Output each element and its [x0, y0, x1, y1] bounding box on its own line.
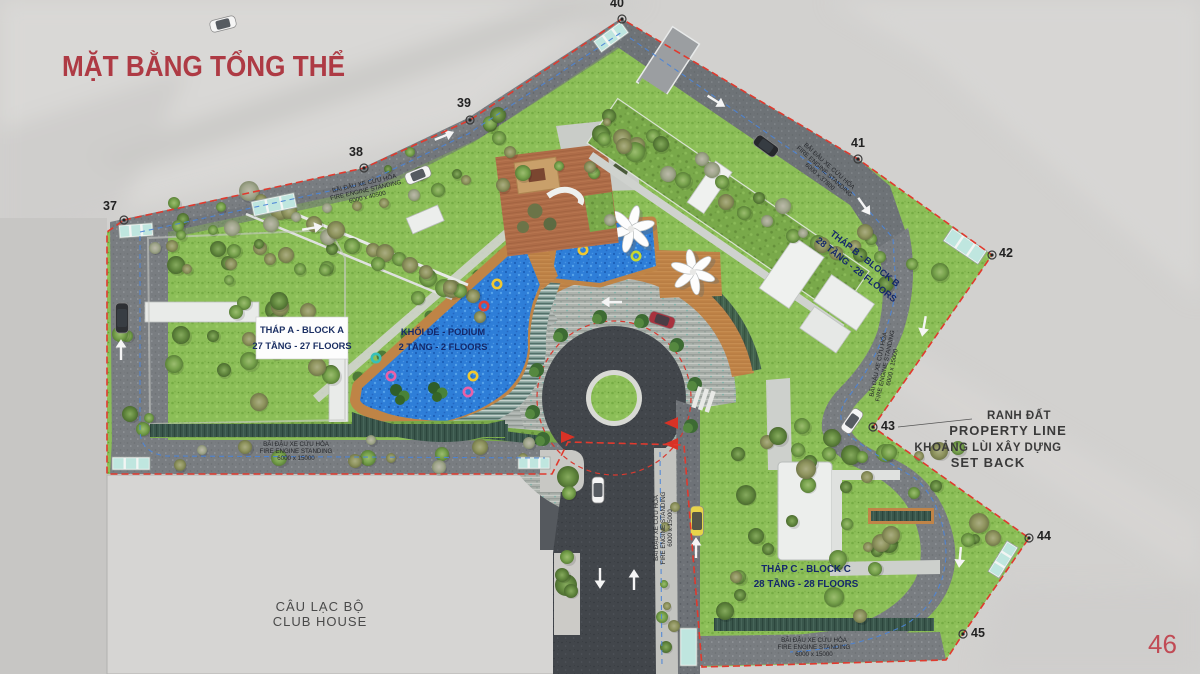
svg-text:42: 42: [999, 246, 1013, 260]
svg-text:BÃI ĐẬU XE CỨU HỎA: BÃI ĐẬU XE CỨU HỎA: [781, 637, 848, 644]
svg-text:KHOẢNG LÙI XÂY DỰNG: KHOẢNG LÙI XÂY DỰNG: [914, 441, 1061, 454]
svg-text:28 TẦNG - 28 FLOORS: 28 TẦNG - 28 FLOORS: [754, 579, 859, 590]
svg-text:40: 40: [610, 0, 624, 10]
svg-text:6000 x 15000: 6000 x 15000: [667, 509, 674, 547]
svg-text:27 TẦNG - 27 FLOORS: 27 TẦNG - 27 FLOORS: [252, 341, 351, 351]
svg-text:43: 43: [881, 419, 895, 433]
svg-text:MẶT BẰNG TỔNG THỂ: MẶT BẰNG TỔNG THỂ: [62, 49, 345, 83]
svg-text:THÁP C - BLOCK C: THÁP C - BLOCK C: [761, 563, 851, 575]
svg-text:THÁP A - BLOCK A: THÁP A - BLOCK A: [260, 325, 344, 335]
svg-text:BÃI ĐẬU XE CỨU HỎA: BÃI ĐẬU XE CỨU HỎA: [653, 494, 660, 561]
svg-text:CÂU LẠC BỘ: CÂU LẠC BỘ: [276, 599, 365, 614]
svg-text:FIRE ENGINE STANDING: FIRE ENGINE STANDING: [778, 644, 851, 651]
svg-text:CLUB HOUSE: CLUB HOUSE: [273, 614, 368, 629]
svg-text:2 TẦNG - 2 FLOORS: 2 TẦNG - 2 FLOORS: [399, 342, 488, 352]
svg-text:BÃI ĐẬU XE CỨU HỎA: BÃI ĐẬU XE CỨU HỎA: [263, 441, 330, 448]
svg-text:FIRE ENGINE STANDING: FIRE ENGINE STANDING: [660, 491, 667, 564]
svg-text:SET BACK: SET BACK: [951, 455, 1025, 470]
svg-text:41: 41: [851, 136, 865, 150]
svg-text:FIRE ENGINE STANDING: FIRE ENGINE STANDING: [260, 448, 333, 455]
svg-text:RANH ĐẤT: RANH ĐẤT: [987, 409, 1051, 422]
svg-text:39: 39: [457, 96, 471, 110]
svg-text:PROPERTY LINE: PROPERTY LINE: [949, 423, 1067, 438]
svg-text:45: 45: [971, 626, 985, 640]
svg-text:44: 44: [1037, 529, 1051, 543]
svg-text:6000 x 15000: 6000 x 15000: [795, 651, 833, 658]
svg-text:KHỐI ĐẾ - PODIUM: KHỐI ĐẾ - PODIUM: [401, 326, 485, 337]
svg-text:38: 38: [349, 145, 363, 159]
svg-text:6000 x 15000: 6000 x 15000: [277, 455, 315, 462]
svg-text:46: 46: [1148, 629, 1177, 659]
svg-text:37: 37: [103, 199, 117, 213]
